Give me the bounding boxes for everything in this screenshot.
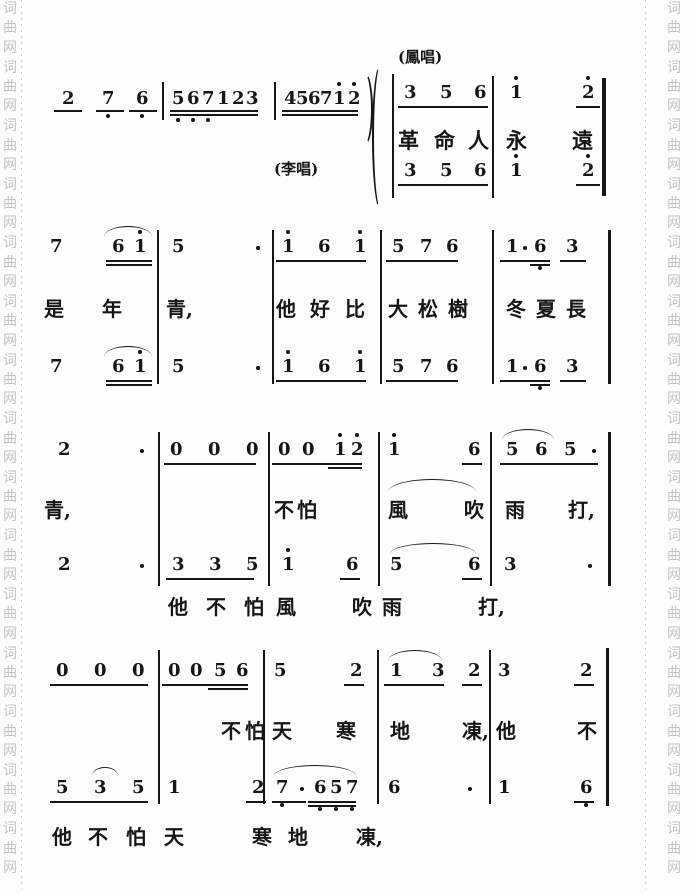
beam-line — [462, 578, 482, 580]
beam-line — [272, 463, 362, 465]
jianpu-note: 1 — [354, 238, 367, 256]
beam-line — [500, 260, 550, 262]
barline — [272, 230, 274, 384]
watermark-char: 词 — [3, 236, 17, 250]
beam-line — [208, 688, 248, 690]
beam-line — [272, 801, 306, 803]
jianpu-note: 3 — [172, 556, 185, 574]
watermark-char: 网 — [3, 41, 17, 55]
jianpu-note: 5 — [564, 441, 577, 459]
lyric-text: 他 — [496, 721, 516, 742]
slur-arc — [502, 429, 554, 440]
slur-arc — [274, 765, 356, 776]
beam-line — [530, 264, 550, 266]
lyric-text: 不 — [88, 827, 108, 848]
jianpu-note: 6 — [314, 779, 327, 797]
beam-line — [282, 110, 358, 112]
watermark-char: 曲 — [3, 80, 17, 94]
jianpu-note: 2 — [58, 441, 71, 459]
jianpu-note: 6 — [112, 358, 125, 376]
watermark-char: 词 — [3, 647, 17, 661]
jianpu-note: 3 — [432, 662, 445, 680]
jianpu-note: 5 — [440, 162, 453, 180]
jianpu-note: 7 — [420, 238, 433, 256]
jianpu-note: 6 — [446, 358, 459, 376]
jianpu-note: 6 — [534, 238, 547, 256]
system-paren — [356, 72, 373, 146]
jianpu-note: 6 — [112, 238, 125, 256]
watermark-char: 曲 — [667, 666, 681, 680]
jianpu-note: 1 — [282, 556, 295, 574]
beam-line — [276, 260, 366, 262]
jianpu-note: 0 — [302, 441, 315, 459]
voice-label: (李唱) — [274, 162, 318, 178]
jianpu-note: 7 — [50, 358, 63, 376]
lyric-text: 長 — [566, 299, 586, 320]
watermark-char: 词 — [667, 647, 681, 661]
jianpu-note: 1 — [134, 358, 147, 376]
lyric-text: 夏 — [536, 299, 556, 320]
jianpu-note: 5 — [246, 556, 259, 574]
jianpu-note: 2 — [351, 441, 364, 459]
jianpu-note: 1 — [390, 662, 403, 680]
watermark-char: 词 — [3, 295, 17, 309]
voice-label: (鳳唱) — [398, 50, 442, 66]
lyric-text: 他 — [52, 827, 72, 848]
beam-line — [164, 463, 256, 465]
jianpu-note: 2 — [62, 90, 75, 108]
augmentation-dot — [592, 449, 596, 453]
watermark-char: 词 — [667, 471, 681, 485]
watermark-char: 曲 — [3, 197, 17, 211]
augmentation-dot — [523, 366, 527, 370]
watermark-char: 网 — [3, 509, 17, 523]
beam-line — [530, 384, 550, 386]
watermark-char: 曲 — [3, 21, 17, 35]
score-page: 词曲网词曲网词曲网词曲网词曲网词曲网词曲网词曲网词曲网词曲网词曲网词曲网词曲网词… — [0, 0, 690, 893]
barline — [489, 650, 491, 804]
watermark-char: 词 — [3, 178, 17, 192]
beam-line — [106, 384, 152, 386]
lyric-text: 地 — [390, 721, 410, 742]
lyric-text: 雨 — [382, 597, 402, 618]
watermark-char: 曲 — [667, 373, 681, 387]
watermark-char: 曲 — [667, 256, 681, 270]
beam-line — [560, 260, 586, 262]
jianpu-note: 0 — [208, 441, 221, 459]
jianpu-note: 1 — [168, 779, 181, 797]
watermark-char: 曲 — [3, 549, 17, 563]
beam-line — [170, 114, 258, 116]
watermark-char: 曲 — [3, 139, 17, 153]
lyric-text: 好 — [310, 299, 330, 320]
lyric-text: 打, — [478, 597, 505, 618]
barline — [608, 230, 611, 384]
barline — [158, 432, 160, 586]
jianpu-note: 3 — [246, 90, 259, 108]
watermark-char: 词 — [3, 2, 17, 16]
jianpu-note: 0 — [278, 441, 291, 459]
watermark-char: 词 — [3, 119, 17, 133]
watermark-char: 曲 — [3, 842, 17, 856]
jianpu-note: 6 — [468, 556, 481, 574]
watermark-char: 词 — [667, 178, 681, 192]
beam-line — [54, 110, 82, 112]
slur-arc — [388, 650, 442, 661]
lyric-text: 怕 — [297, 500, 317, 521]
augmentation-dot — [256, 246, 260, 250]
lyric-text: 永 — [506, 130, 527, 152]
jianpu-note: 3 — [94, 779, 107, 797]
jianpu-note: 0 — [190, 662, 203, 680]
beam-line — [386, 380, 458, 382]
jianpu-note: 5 — [132, 779, 145, 797]
beam-line — [282, 114, 358, 116]
lyric-text: 松 — [418, 299, 438, 320]
lyric-text: 凍, — [356, 827, 383, 848]
watermark-char: 词 — [3, 822, 17, 836]
watermark-char: 词 — [3, 588, 17, 602]
watermark-char: 网 — [3, 685, 17, 699]
jianpu-note: 1 — [134, 238, 147, 256]
jianpu-note: 7 — [50, 238, 63, 256]
jianpu-note: 5 — [56, 779, 69, 797]
watermark-char: 曲 — [667, 490, 681, 504]
beam-line — [398, 184, 488, 186]
beam-line — [129, 110, 157, 112]
watermark-char: 词 — [667, 529, 681, 543]
watermark-char: 词 — [3, 354, 17, 368]
lyric-text: 不 — [274, 500, 294, 521]
barline — [157, 230, 159, 384]
watermark-char: 网 — [667, 334, 681, 348]
watermark-char: 曲 — [3, 666, 17, 680]
watermark-char: 曲 — [667, 139, 681, 153]
lyric-text: 寒 — [336, 721, 356, 742]
jianpu-note: 1 — [333, 90, 346, 108]
jianpu-note: 5 — [440, 84, 453, 102]
barline — [162, 82, 164, 120]
augmentation-dot — [468, 787, 472, 791]
watermark-char: 曲 — [3, 490, 17, 504]
barline — [490, 432, 492, 586]
beam-line — [462, 684, 482, 686]
jianpu-note: 6 — [318, 358, 331, 376]
watermark-char: 曲 — [667, 549, 681, 563]
lyric-text: 樹 — [448, 299, 468, 320]
watermark-char: 词 — [667, 588, 681, 602]
jianpu-note: 5 — [392, 238, 405, 256]
watermark-char: 网 — [3, 744, 17, 758]
lyric-text: 冬 — [506, 299, 526, 320]
watermark-char: 网 — [667, 158, 681, 172]
barline — [608, 432, 611, 586]
watermark-char: 曲 — [667, 432, 681, 446]
jianpu-note: 6 — [236, 662, 249, 680]
barline — [606, 648, 609, 806]
watermark-char: 网 — [3, 275, 17, 289]
jianpu-note: 6 — [318, 238, 331, 256]
jianpu-note: 5 — [392, 358, 405, 376]
watermark-char: 网 — [3, 627, 17, 641]
lyric-text: 怕 — [245, 721, 265, 742]
jianpu-note: 1 — [498, 779, 511, 797]
beam-line — [328, 467, 362, 469]
jianpu-note: 0 — [246, 441, 259, 459]
beam-line — [106, 264, 152, 266]
augmentation-dot — [140, 564, 144, 568]
jianpu-note: 1 — [506, 358, 519, 376]
jianpu-note: 5 — [390, 556, 403, 574]
jianpu-note: 4 — [284, 90, 297, 108]
lyric-text: 大 — [388, 299, 408, 320]
lyric-text: 不 — [221, 721, 241, 742]
jianpu-note: 5 — [506, 441, 519, 459]
beam-line — [106, 380, 152, 382]
beam-line — [500, 463, 598, 465]
jianpu-note: 1 — [354, 358, 367, 376]
lyric-text: 吹 — [352, 597, 372, 618]
jianpu-note: 1 — [510, 84, 523, 102]
jianpu-note: 6 — [534, 358, 547, 376]
watermark-char: 词 — [667, 2, 681, 16]
watermark-char: 网 — [667, 99, 681, 113]
watermark-char: 网 — [3, 568, 17, 582]
watermark-char: 曲 — [667, 783, 681, 797]
lyric-text: 雨 — [505, 500, 525, 521]
beam-line — [386, 260, 458, 262]
jianpu-note: 5 — [274, 662, 287, 680]
system-paren — [372, 64, 389, 210]
barline — [380, 230, 382, 384]
jianpu-note: 1 — [217, 90, 230, 108]
jianpu-note: 1 — [388, 441, 401, 459]
augmentation-dot — [140, 449, 144, 453]
watermark-char: 网 — [667, 802, 681, 816]
slur-arc — [390, 543, 476, 554]
watermark-char: 曲 — [3, 314, 17, 328]
jianpu-note: 5 — [172, 238, 185, 256]
jianpu-note: 1 — [510, 162, 523, 180]
watermark-char: 词 — [3, 705, 17, 719]
jianpu-note: 6 — [446, 238, 459, 256]
watermark-char: 曲 — [3, 783, 17, 797]
watermark-dotted-line — [645, 0, 646, 893]
watermark-char: 网 — [667, 451, 681, 465]
watermark-char: 曲 — [3, 432, 17, 446]
watermark-char: 词 — [667, 119, 681, 133]
lyric-text: 寒 — [252, 827, 272, 848]
jianpu-note: 5 — [330, 779, 343, 797]
watermark-char: 网 — [667, 41, 681, 55]
lyric-text: 怕 — [244, 597, 264, 618]
beam-line — [574, 801, 594, 803]
watermark-char: 曲 — [3, 373, 17, 387]
watermark-char: 网 — [3, 392, 17, 406]
jianpu-note: 2 — [58, 556, 71, 574]
beam-line — [308, 805, 356, 807]
lyric-text: 年 — [102, 299, 122, 320]
lyric-text: 天 — [164, 827, 184, 848]
watermark-char: 网 — [667, 216, 681, 230]
lyric-text: 不 — [206, 597, 226, 618]
jianpu-note: 2 — [582, 84, 595, 102]
barline — [158, 650, 160, 804]
beam-line — [384, 684, 444, 686]
beam-line — [576, 106, 600, 108]
jianpu-note: 3 — [566, 238, 579, 256]
beam-line — [50, 684, 148, 686]
beam-line — [308, 801, 356, 803]
jianpu-note: 0 — [132, 662, 145, 680]
jianpu-note: 3 — [504, 556, 517, 574]
jianpu-note: 0 — [94, 662, 107, 680]
lyric-text: 命 — [434, 130, 455, 152]
watermark-char: 词 — [667, 354, 681, 368]
beam-line — [50, 801, 148, 803]
watermark-char: 网 — [667, 392, 681, 406]
beam-line — [340, 578, 360, 580]
beam-line — [574, 684, 594, 686]
jianpu-note: 6 — [535, 441, 548, 459]
lyric-text: 吹 — [464, 500, 484, 521]
augmentation-dot — [588, 564, 592, 568]
jianpu-note: 6 — [308, 90, 321, 108]
jianpu-note: 6 — [187, 90, 200, 108]
jianpu-note: 6 — [388, 779, 401, 797]
watermark-char: 词 — [667, 822, 681, 836]
watermark-char: 网 — [3, 334, 17, 348]
jianpu-note: 5 — [172, 90, 185, 108]
jianpu-note: 6 — [136, 90, 149, 108]
barline — [492, 76, 494, 198]
jianpu-note: 0 — [168, 662, 181, 680]
watermark-char: 词 — [3, 471, 17, 485]
beam-line — [170, 110, 258, 112]
barline — [274, 82, 276, 120]
lyric-text: 青, — [44, 500, 71, 521]
jianpu-note: 1 — [334, 441, 347, 459]
barline — [378, 432, 380, 586]
beam-line — [398, 106, 488, 108]
watermark-char: 词 — [3, 412, 17, 426]
lyric-text: 人 — [468, 130, 489, 152]
lyric-text: 遠 — [572, 130, 593, 152]
jianpu-note: 3 — [404, 84, 417, 102]
slur-arc — [388, 479, 476, 492]
watermark-char: 网 — [3, 216, 17, 230]
beam-line — [162, 684, 248, 686]
jianpu-note: 5 — [214, 662, 227, 680]
lyric-text: 風 — [276, 597, 296, 618]
jianpu-note: 2 — [580, 662, 593, 680]
watermark-char: 网 — [3, 861, 17, 875]
lyric-text: 打, — [568, 500, 595, 521]
beam-line — [106, 260, 152, 262]
watermark-char: 网 — [667, 509, 681, 523]
lyric-text: 凍, — [462, 721, 489, 742]
watermark-char: 网 — [667, 627, 681, 641]
lyric-text: 怕 — [126, 827, 146, 848]
beam-line — [276, 380, 366, 382]
beam-line — [500, 380, 550, 382]
barline — [377, 650, 379, 804]
jianpu-note: 1 — [282, 238, 295, 256]
beam-line — [344, 684, 364, 686]
barline — [392, 74, 394, 198]
lyric-text: 青, — [166, 299, 193, 320]
jianpu-note: 5 — [296, 90, 309, 108]
watermark-char: 曲 — [667, 80, 681, 94]
lyric-text: 革 — [398, 130, 419, 152]
watermark-char: 词 — [667, 412, 681, 426]
beam-line — [560, 380, 586, 382]
watermark-char: 曲 — [667, 725, 681, 739]
jianpu-note: 1 — [282, 358, 295, 376]
jianpu-note: 2 — [252, 779, 265, 797]
jianpu-note: 7 — [346, 779, 359, 797]
beam-line — [96, 110, 124, 112]
augmentation-dot — [256, 366, 260, 370]
lyric-text: 地 — [288, 827, 308, 848]
watermark-char: 曲 — [3, 725, 17, 739]
beam-line — [462, 463, 482, 465]
jianpu-note: 3 — [404, 162, 417, 180]
watermark-char: 网 — [667, 685, 681, 699]
jianpu-note: 0 — [56, 662, 69, 680]
watermark-char: 网 — [667, 861, 681, 875]
jianpu-note: 7 — [202, 90, 215, 108]
lyric-text: 他 — [276, 299, 296, 320]
lyric-text: 天 — [272, 721, 292, 742]
lyric-text: 是 — [44, 299, 64, 320]
jianpu-note: 2 — [582, 162, 595, 180]
beam-line — [246, 801, 266, 803]
watermark-char: 词 — [3, 764, 17, 778]
jianpu-note: 3 — [566, 358, 579, 376]
watermark-char: 词 — [667, 61, 681, 75]
jianpu-note: 7 — [420, 358, 433, 376]
watermark-char: 词 — [667, 705, 681, 719]
augmentation-dot — [300, 787, 304, 791]
lyric-text: 他 — [168, 597, 188, 618]
watermark-dotted-line — [21, 0, 22, 893]
jianpu-note: 6 — [474, 162, 487, 180]
watermark-char: 网 — [667, 568, 681, 582]
watermark-char: 词 — [3, 529, 17, 543]
lyric-text: 比 — [345, 299, 365, 320]
jianpu-note: 6 — [346, 556, 359, 574]
jianpu-note: 6 — [580, 779, 593, 797]
watermark-char: 曲 — [667, 314, 681, 328]
watermark-char: 词 — [3, 61, 17, 75]
jianpu-note: 7 — [276, 779, 289, 797]
slur-arc — [92, 767, 118, 776]
watermark-char: 网 — [667, 275, 681, 289]
jianpu-note: 0 — [170, 441, 183, 459]
jianpu-note: 2 — [468, 662, 481, 680]
augmentation-dot — [523, 246, 527, 250]
watermark-char: 曲 — [667, 197, 681, 211]
barline — [268, 432, 270, 586]
jianpu-note: 7 — [320, 90, 333, 108]
jianpu-note: 6 — [468, 441, 481, 459]
watermark-char: 词 — [667, 236, 681, 250]
jianpu-note: 1 — [506, 238, 519, 256]
jianpu-note: 3 — [209, 556, 222, 574]
lyric-text: 風 — [388, 500, 408, 521]
watermark-char: 曲 — [667, 842, 681, 856]
